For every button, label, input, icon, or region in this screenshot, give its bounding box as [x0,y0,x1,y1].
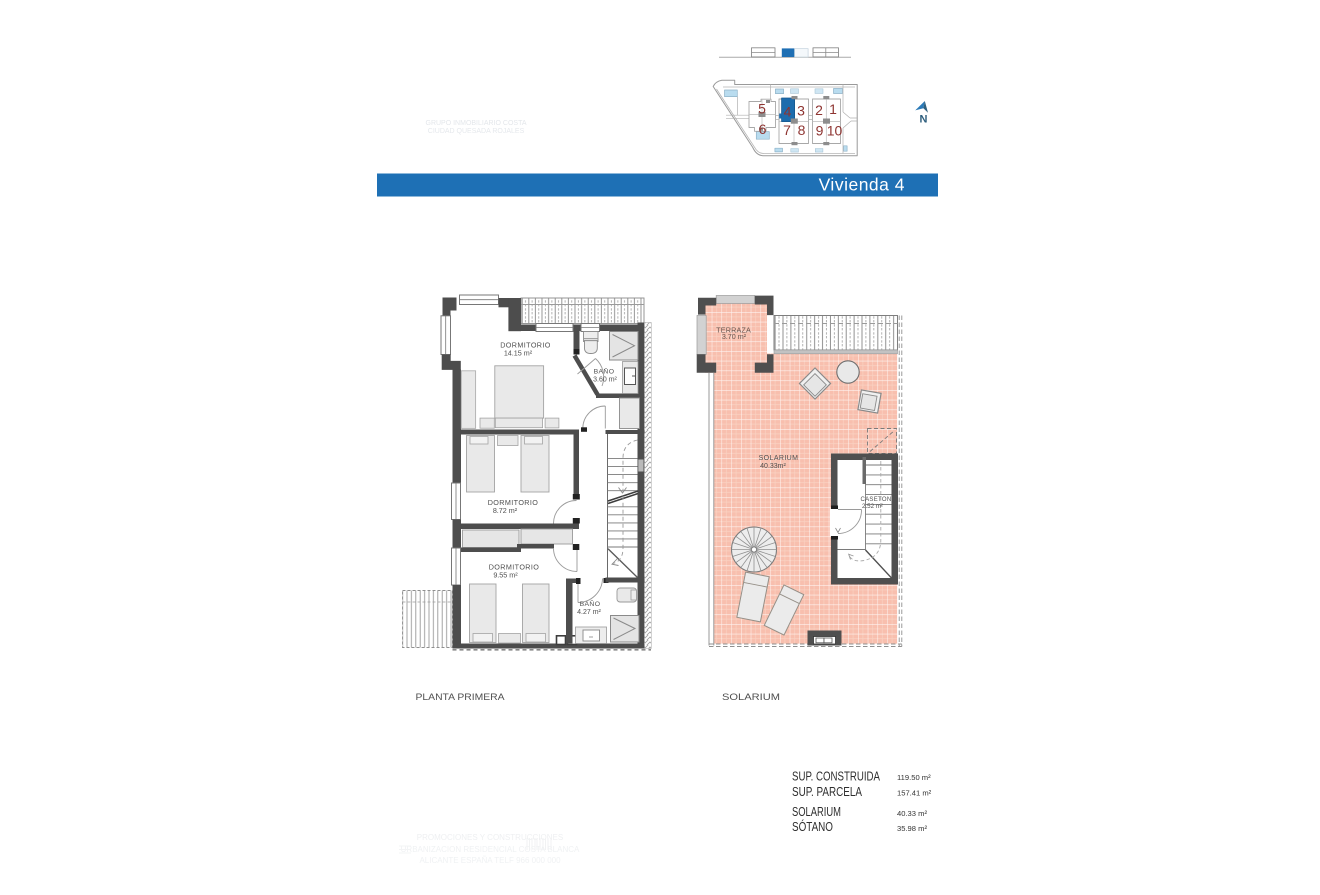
svg-text:3.60 m²: 3.60 m² [593,377,617,384]
svg-text:5: 5 [758,101,766,117]
svg-text:9: 9 [816,123,824,139]
svg-text:7: 7 [783,122,791,138]
svg-text:SUP. PARCELA: SUP. PARCELA [792,785,863,799]
svg-text:SÓTANO: SÓTANO [792,819,833,834]
svg-text:BAÑO: BAÑO [594,367,615,376]
svg-text:SUP. CONSTRUIDA: SUP. CONSTRUIDA [792,769,881,783]
svg-text:PLANTA PRIMERA: PLANTA PRIMERA [416,692,505,702]
svg-text:9.55 m²: 9.55 m² [493,571,518,580]
svg-text:2.52 m²: 2.52 m² [862,503,883,510]
svg-text:ALICANTE ESPAÑA TELF 966 000 0: ALICANTE ESPAÑA TELF 966 000 000 [419,856,561,865]
svg-text:119.50 m²: 119.50 m² [897,773,931,782]
svg-text:4.27 m²: 4.27 m² [577,609,601,616]
svg-text:157.41 m²: 157.41 m² [897,789,932,798]
svg-text:GRUPO INMOBILIARIO COSTA: GRUPO INMOBILIARIO COSTA [426,120,527,127]
svg-text:SOLARIUM: SOLARIUM [722,692,780,702]
svg-text:2: 2 [815,102,823,118]
svg-text:PROMOCIONES Y CONSTRUCCIONES: PROMOCIONES Y CONSTRUCCIONES [417,833,563,842]
svg-text:40.33m²: 40.33m² [760,463,786,470]
svg-text:10: 10 [827,123,843,139]
svg-text:CIUDAD QUESADA ROJALES: CIUDAD QUESADA ROJALES [428,128,525,135]
svg-text:8.72 m²: 8.72 m² [493,506,518,515]
svg-text:SOLARIUM: SOLARIUM [792,805,841,819]
svg-text:URBANIZACION RESIDENCIAL COSTA: URBANIZACION RESIDENCIAL COSTA BLANCA [401,845,580,854]
svg-text:8: 8 [798,122,806,138]
svg-text:3: 3 [797,103,805,119]
svg-text:35.98 m²: 35.98 m² [897,824,927,833]
svg-text:3.70 m²: 3.70 m² [722,332,747,341]
svg-text:BAÑO: BAÑO [580,599,601,608]
svg-text:SOLARIUM: SOLARIUM [759,455,799,462]
svg-text:Vivienda 4: Vivienda 4 [819,175,905,195]
svg-text:14.15 m²: 14.15 m² [504,349,533,358]
svg-text:N: N [920,114,928,126]
svg-text:4: 4 [784,104,792,120]
svg-text:1: 1 [829,101,837,117]
svg-text:6: 6 [759,121,767,137]
svg-text:40.33 m²: 40.33 m² [897,809,927,818]
